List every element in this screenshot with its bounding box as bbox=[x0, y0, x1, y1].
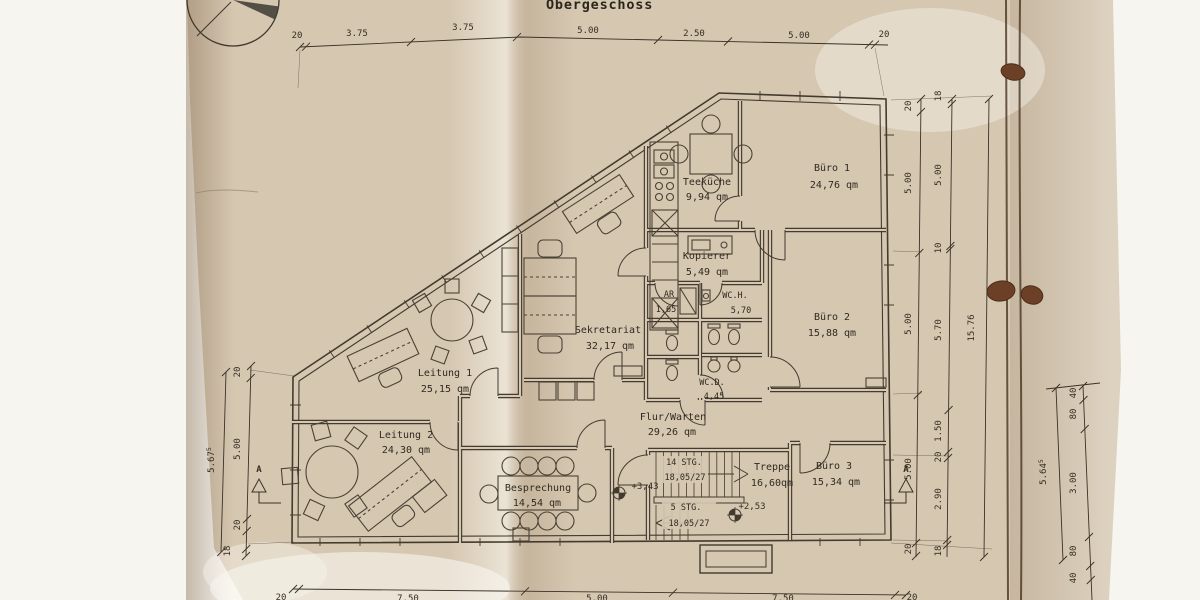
svg-text:32,17 qm: 32,17 qm bbox=[586, 341, 634, 352]
svg-text:5.00: 5.00 bbox=[586, 594, 608, 600]
svg-text:10: 10 bbox=[934, 243, 944, 254]
svg-text:29,26 qm: 29,26 qm bbox=[648, 427, 696, 438]
wrinkle-highlight bbox=[203, 542, 327, 600]
svg-text:4,45: 4,45 bbox=[704, 392, 724, 402]
svg-text:Büro 3: Büro 3 bbox=[816, 461, 852, 472]
svg-text:Büro 1: Büro 1 bbox=[814, 163, 850, 174]
svg-text:15,88 qm: 15,88 qm bbox=[808, 328, 856, 339]
svg-text:18: 18 bbox=[934, 546, 944, 557]
svg-text:24,76 qm: 24,76 qm bbox=[810, 180, 858, 191]
svg-text:Treppe: Treppe bbox=[754, 462, 790, 473]
svg-text:5.70: 5.70 bbox=[934, 319, 944, 341]
svg-text:5,49 qm: 5,49 qm bbox=[686, 267, 728, 278]
paper bbox=[0, 0, 1200, 600]
svg-text:20: 20 bbox=[233, 367, 243, 378]
svg-text:7.50: 7.50 bbox=[772, 594, 794, 600]
svg-text:2.90: 2.90 bbox=[934, 488, 944, 510]
floorplan-svg: Obergeschoss bbox=[0, 0, 1200, 600]
svg-text:5.00: 5.00 bbox=[233, 438, 243, 460]
svg-text:20: 20 bbox=[292, 31, 303, 41]
svg-text:Leitung 2: Leitung 2 bbox=[379, 430, 433, 441]
svg-text:A: A bbox=[256, 465, 262, 475]
svg-text:20: 20 bbox=[904, 544, 914, 555]
svg-text:5.00: 5.00 bbox=[788, 31, 810, 41]
svg-text:80: 80 bbox=[1069, 546, 1079, 557]
svg-text:14,54 qm: 14,54 qm bbox=[513, 498, 561, 509]
svg-text:5 STG.: 5 STG. bbox=[671, 503, 702, 513]
svg-text:20: 20 bbox=[276, 593, 287, 600]
left-edge-shadow bbox=[186, 0, 234, 600]
right-total-dimension: 15.76 bbox=[967, 314, 977, 341]
svg-text:20: 20 bbox=[907, 593, 918, 600]
svg-text:80: 80 bbox=[1069, 409, 1079, 420]
svg-text:40: 40 bbox=[1069, 573, 1079, 584]
svg-text:1.50: 1.50 bbox=[934, 420, 944, 442]
svg-text:18: 18 bbox=[223, 546, 233, 557]
svg-text:24,30 qm: 24,30 qm bbox=[382, 445, 430, 456]
svg-text:20: 20 bbox=[934, 452, 944, 463]
svg-text:5,70: 5,70 bbox=[731, 306, 751, 316]
svg-text:5.00: 5.00 bbox=[904, 172, 914, 194]
svg-text:5.00: 5.00 bbox=[577, 26, 599, 36]
svg-text:Teeküche: Teeküche bbox=[683, 177, 731, 188]
svg-text:7.50: 7.50 bbox=[397, 594, 419, 600]
svg-text:14 STG.: 14 STG. bbox=[666, 458, 702, 468]
svg-text:Flur/Warten: Flur/Warten bbox=[640, 412, 706, 423]
svg-text:WC.H.: WC.H. bbox=[722, 291, 748, 301]
svg-text:Kopierer: Kopierer bbox=[683, 251, 731, 262]
scanned-floorplan-photo: Obergeschoss bbox=[0, 0, 1200, 600]
level-annotation-upper: +3,43 bbox=[631, 482, 658, 492]
svg-text:20: 20 bbox=[879, 30, 890, 40]
svg-text:WC.D.: WC.D. bbox=[699, 378, 725, 388]
svg-text:40: 40 bbox=[1069, 388, 1079, 399]
svg-text:9,94 qm: 9,94 qm bbox=[686, 192, 728, 203]
svg-text:Sekretariat: Sekretariat bbox=[575, 325, 641, 336]
svg-text:5.00: 5.00 bbox=[904, 313, 914, 335]
svg-text:Besprechung: Besprechung bbox=[505, 483, 571, 494]
drawing-title: Obergeschoss bbox=[546, 0, 653, 13]
svg-text:3.00: 3.00 bbox=[1069, 472, 1079, 494]
svg-text:20: 20 bbox=[233, 520, 243, 531]
svg-text:16,60qm: 16,60qm bbox=[751, 478, 793, 489]
svg-text:25,15 qm: 25,15 qm bbox=[421, 384, 469, 395]
svg-text:3.75: 3.75 bbox=[346, 29, 368, 39]
svg-text:20: 20 bbox=[904, 101, 914, 112]
level-annotation-mid: +2,53 bbox=[738, 502, 765, 512]
svg-text:15,34 qm: 15,34 qm bbox=[812, 477, 860, 488]
svg-text:AR: AR bbox=[664, 290, 675, 300]
svg-text:A: A bbox=[903, 465, 909, 475]
svg-text:2.50: 2.50 bbox=[683, 29, 705, 39]
svg-text:1,65: 1,65 bbox=[656, 305, 676, 315]
svg-text:18: 18 bbox=[934, 91, 944, 102]
svg-text:18,05/27: 18,05/27 bbox=[665, 473, 706, 483]
svg-text:5.00: 5.00 bbox=[934, 164, 944, 186]
svg-text:Büro 2: Büro 2 bbox=[814, 312, 850, 323]
svg-text:18,05/27: 18,05/27 bbox=[669, 519, 710, 529]
svg-text:3.75: 3.75 bbox=[452, 23, 474, 33]
svg-text:Leitung 1: Leitung 1 bbox=[418, 368, 472, 379]
